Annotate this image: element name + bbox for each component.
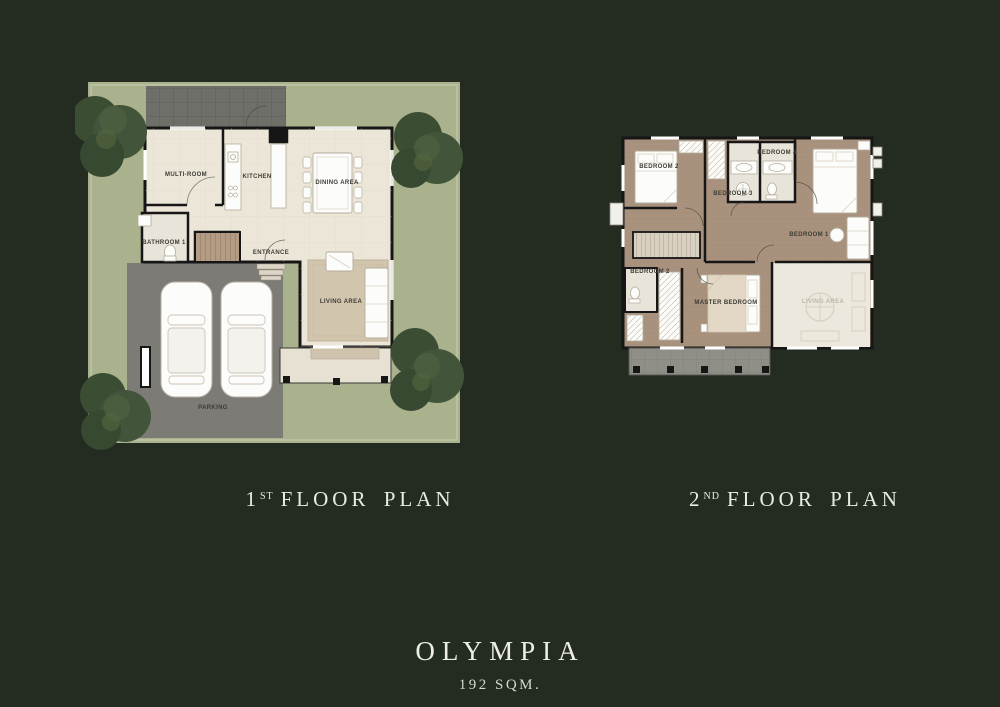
room-label-bath-center: BEDROOM 3 xyxy=(713,191,753,197)
room-label-master-bedroom: MASTER BEDROOM xyxy=(694,300,757,306)
toilet xyxy=(631,287,640,299)
room-label-kitchen: KITCHEN xyxy=(242,174,271,180)
room-label-bathroom-1: BATHROOM 1 xyxy=(142,240,185,246)
room-label-bath-right: BEDROOM 4 xyxy=(757,150,797,156)
tall-cabinet xyxy=(271,144,286,208)
staircase xyxy=(633,232,700,258)
cabinet xyxy=(858,141,870,150)
wardrobe-hatch xyxy=(659,272,680,340)
first-floor-plan: MULTI-ROOM KITCHEN DINING AREA BATHROOM … xyxy=(75,60,465,455)
room-label-living-area: LIVING AREA xyxy=(320,299,362,305)
sofa xyxy=(847,217,869,259)
gate-post xyxy=(141,347,150,387)
car xyxy=(161,282,212,397)
staircase xyxy=(195,232,240,262)
room-label-living-void: LIVING AREA xyxy=(802,299,844,305)
sink xyxy=(138,215,151,226)
caption-text: FLOOR PLAN xyxy=(727,487,901,511)
room-label-multi-room: MULTI-ROOM xyxy=(165,172,207,178)
first-floor-caption: 1STFLOOR PLAN xyxy=(200,487,500,512)
wardrobe-hatch xyxy=(627,315,643,341)
sofa xyxy=(365,268,388,338)
car xyxy=(221,282,272,397)
living-void xyxy=(772,263,870,347)
first-floor-drawing xyxy=(75,60,465,455)
second-floor-caption: 2NDFLOOR PLAN xyxy=(645,487,945,512)
bathroom1-room xyxy=(138,213,188,262)
room-label-bedroom-2: BEDROOM 2 xyxy=(639,164,679,170)
tv-console xyxy=(311,348,379,359)
model-title: OLYMPIA xyxy=(0,636,1000,667)
room-label-bedroom-1: BEDROOM 1 xyxy=(789,232,829,238)
caption-ordinal: ST xyxy=(260,491,274,502)
room-label-dining-area: DINING AREA xyxy=(315,180,358,186)
bed xyxy=(813,149,857,213)
caption-number: 1 xyxy=(245,487,260,511)
caption-text: FLOOR PLAN xyxy=(281,487,455,511)
caption-number: 2 xyxy=(689,487,704,511)
room-label-entrance: ENTRANCE xyxy=(253,250,289,256)
caption-ordinal: ND xyxy=(704,491,720,502)
paved-patio xyxy=(146,86,286,130)
room-label-parking: PARKING xyxy=(198,405,228,411)
room-label-bath-lower: BEDROOM 2 xyxy=(630,269,670,275)
floor-plan-sheet: MULTI-ROOM KITCHEN DINING AREA BATHROOM … xyxy=(0,0,1000,707)
toilet xyxy=(768,183,777,195)
wardrobe-hatch xyxy=(708,141,725,179)
side-table xyxy=(830,228,844,242)
balcony xyxy=(629,348,770,375)
model-area: 192 SQM. xyxy=(0,677,1000,694)
second-floor-plan: BEDROOM 2 BEDROOM 3 BEDROOM 4 BEDROOM 1 … xyxy=(605,125,885,385)
